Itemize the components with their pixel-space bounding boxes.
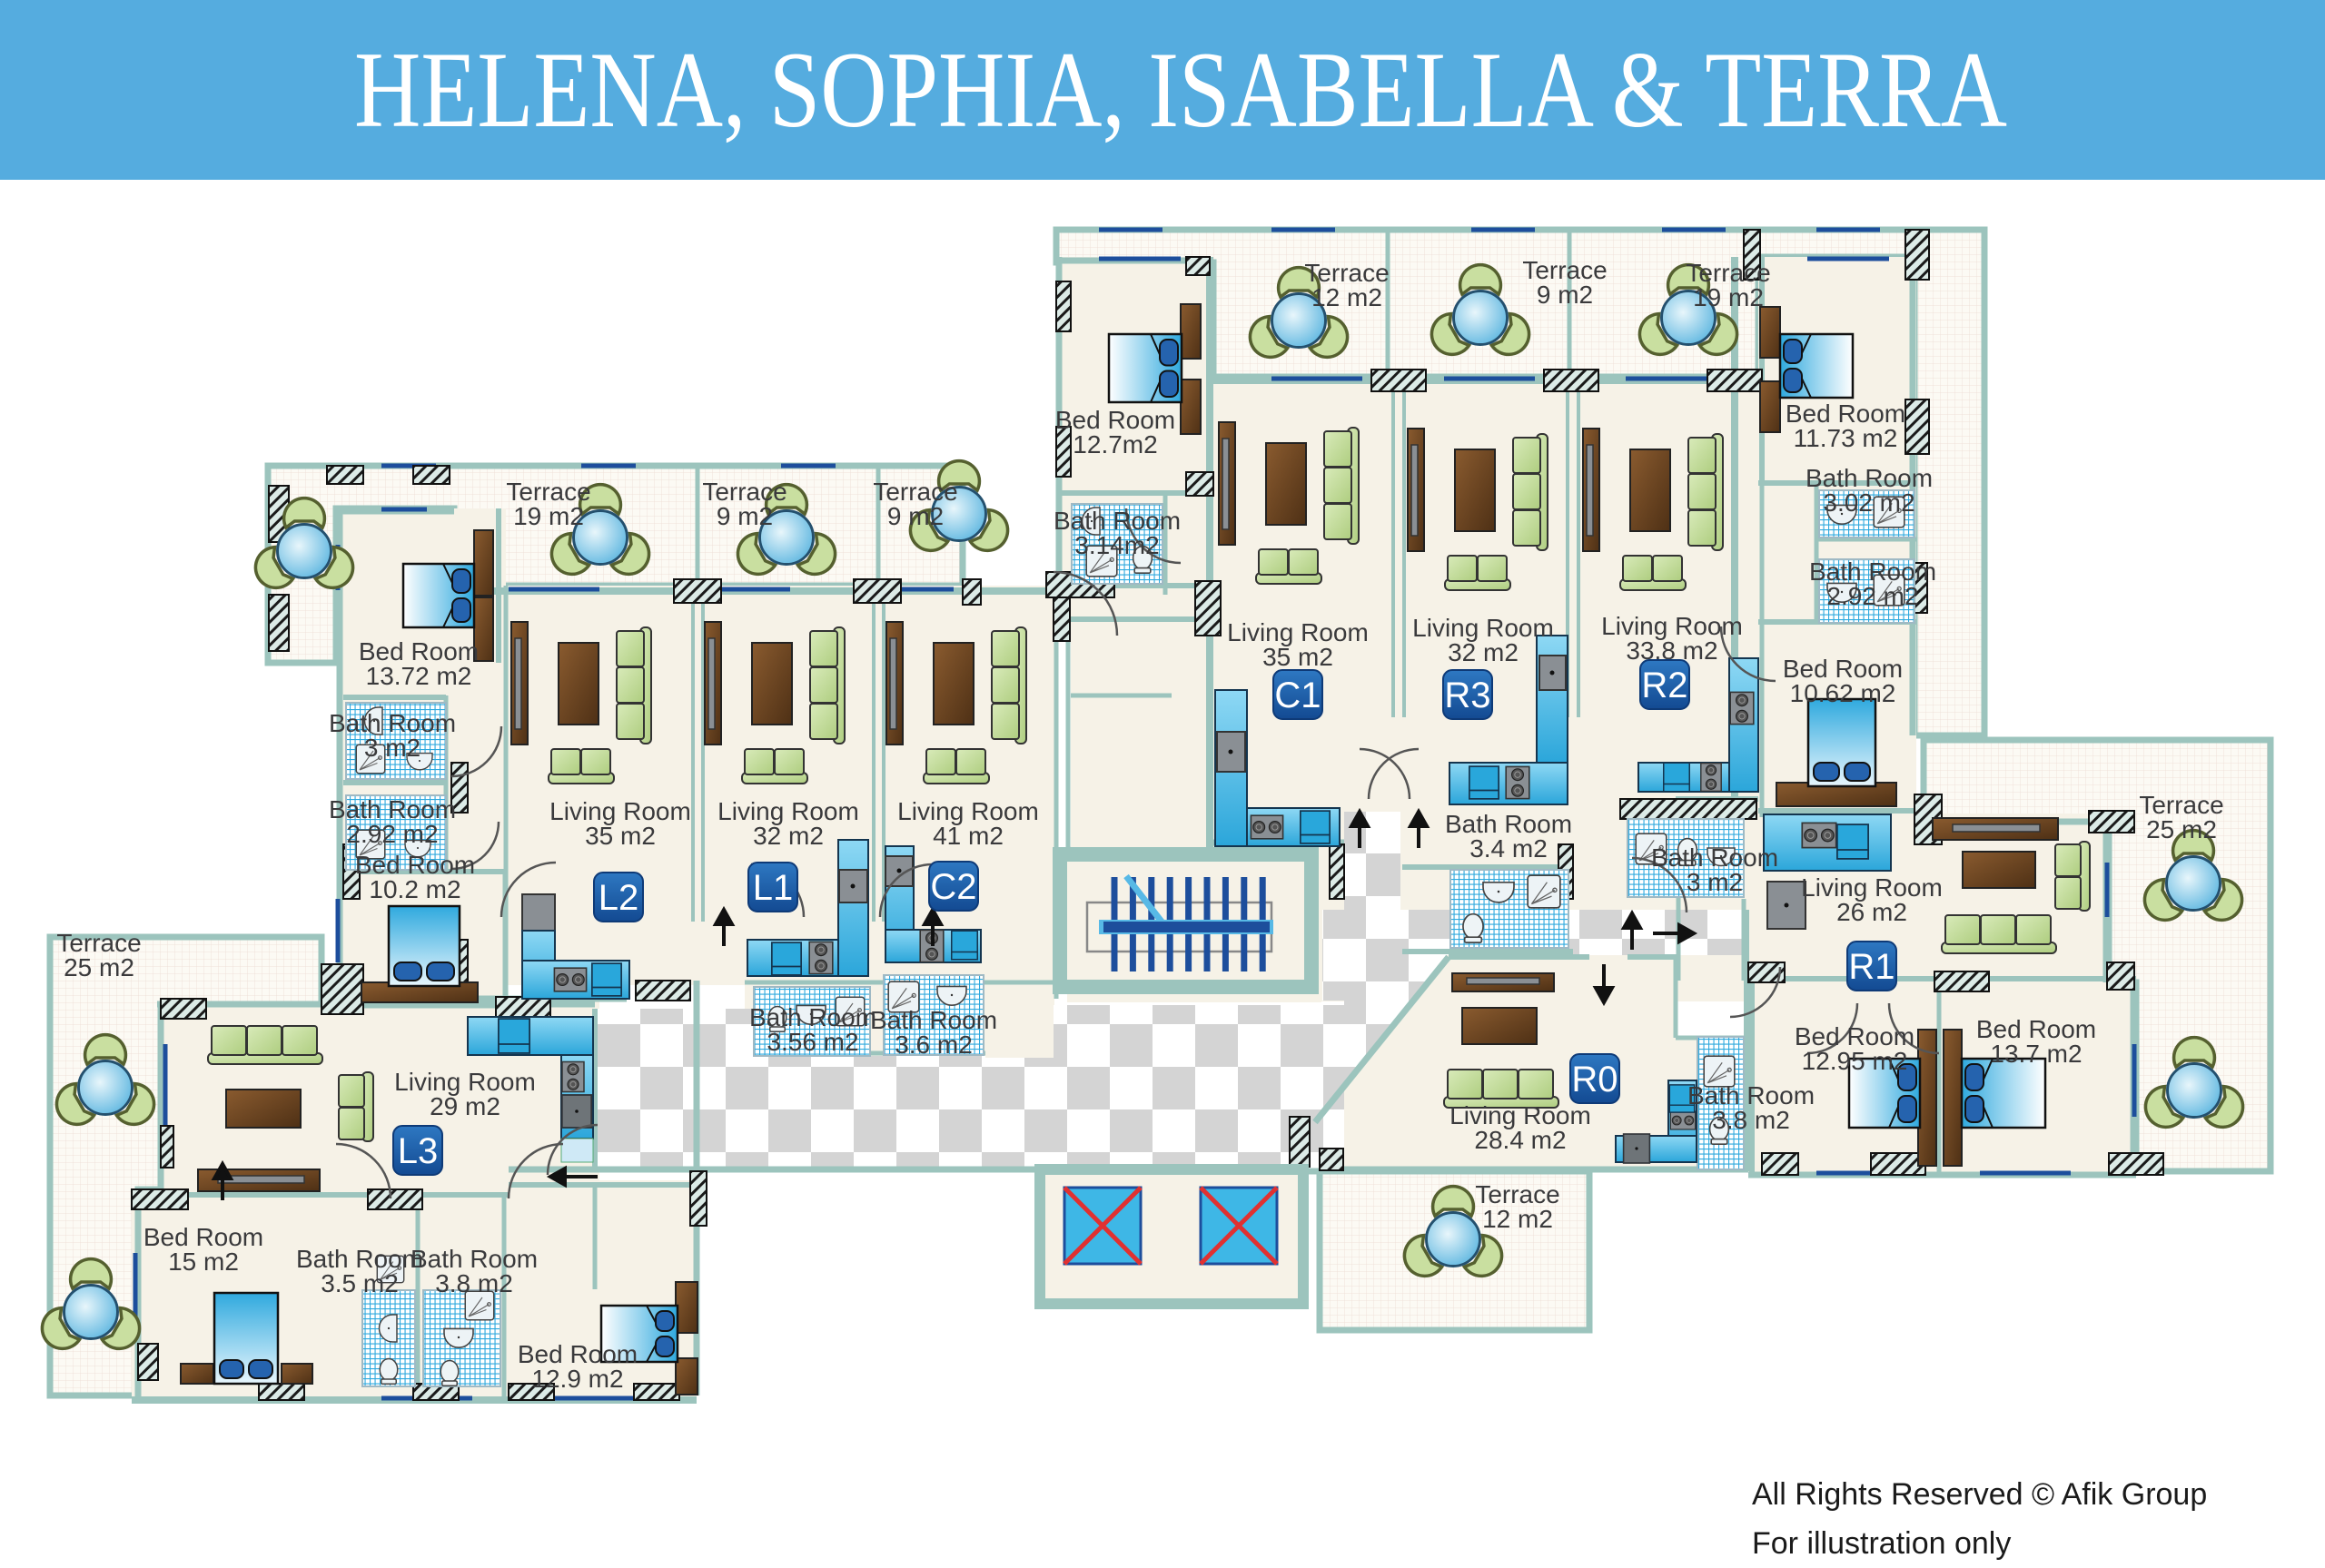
svg-text:R2: R2 (1641, 666, 1687, 705)
svg-text:12.9 m2: 12.9 m2 (531, 1365, 623, 1393)
svg-text:3 m2: 3 m2 (1687, 868, 1743, 896)
svg-text:3.02 m2: 3.02 m2 (1823, 488, 1914, 517)
svg-text:L1: L1 (753, 868, 794, 908)
svg-text:32 m2: 32 m2 (1448, 638, 1519, 666)
svg-text:L3: L3 (398, 1131, 439, 1171)
svg-text:L2: L2 (599, 878, 639, 918)
svg-text:3 m2: 3 m2 (364, 734, 420, 762)
svg-text:R0: R0 (1571, 1060, 1618, 1100)
svg-text:25 m2: 25 m2 (64, 953, 134, 981)
svg-text:35 m2: 35 m2 (585, 822, 656, 850)
svg-text:R1: R1 (1848, 947, 1895, 987)
svg-text:HELENA, SOPHIA, ISABELLA & TER: HELENA, SOPHIA, ISABELLA & TERRA (354, 29, 2007, 150)
svg-text:35 m2: 35 m2 (1262, 643, 1333, 671)
svg-text:41 m2: 41 m2 (933, 822, 1004, 850)
svg-text:26 m2: 26 m2 (1836, 898, 1907, 926)
svg-text:9 m2: 9 m2 (1537, 281, 1593, 309)
svg-text:11.73 m2: 11.73 m2 (1794, 424, 1898, 452)
svg-text:13.7 m2: 13.7 m2 (1990, 1040, 2082, 1068)
svg-text:For illustration only: For illustration only (1752, 1526, 2011, 1561)
svg-text:13.72 m2: 13.72 m2 (366, 662, 472, 690)
svg-text:3.6 m2: 3.6 m2 (895, 1031, 973, 1059)
svg-text:3.8 m2: 3.8 m2 (435, 1269, 513, 1297)
svg-text:10.2 m2: 10.2 m2 (369, 875, 460, 903)
svg-text:All Rights Reserved © Afik Gro: All Rights Reserved © Afik Group (1752, 1477, 2207, 1512)
svg-text:9 m2: 9 m2 (887, 502, 944, 530)
svg-text:12 m2: 12 m2 (1311, 283, 1382, 311)
svg-text:3.5 m2: 3.5 m2 (321, 1269, 399, 1297)
svg-text:10.62 m2: 10.62 m2 (1790, 679, 1896, 707)
svg-text:3.14m2: 3.14m2 (1074, 531, 1159, 559)
svg-text:32 m2: 32 m2 (753, 822, 824, 850)
svg-text:9 m2: 9 m2 (717, 502, 773, 530)
svg-text:R3: R3 (1444, 676, 1490, 715)
svg-text:12 m2: 12 m2 (1482, 1205, 1553, 1233)
svg-text:3.8 m2: 3.8 m2 (1712, 1106, 1790, 1134)
svg-text:29 m2: 29 m2 (430, 1092, 500, 1120)
svg-text:C1: C1 (1274, 676, 1321, 715)
svg-text:15 m2: 15 m2 (168, 1247, 239, 1276)
svg-text:12.7m2: 12.7m2 (1073, 430, 1157, 459)
svg-text:3.56 m2: 3.56 m2 (767, 1028, 858, 1056)
svg-text:2.92 m2: 2.92 m2 (1826, 582, 1918, 610)
svg-text:19 m2: 19 m2 (1693, 283, 1764, 311)
svg-text:28.4 m2: 28.4 m2 (1474, 1126, 1566, 1154)
svg-text:12.95 m2: 12.95 m2 (1802, 1047, 1908, 1075)
svg-text:25 m2: 25 m2 (2146, 815, 2217, 843)
svg-text:2.92 m2: 2.92 m2 (346, 820, 438, 848)
svg-text:19 m2: 19 m2 (513, 502, 584, 530)
svg-text:3.4 m2: 3.4 m2 (1469, 834, 1548, 863)
svg-text:C2: C2 (930, 867, 976, 907)
